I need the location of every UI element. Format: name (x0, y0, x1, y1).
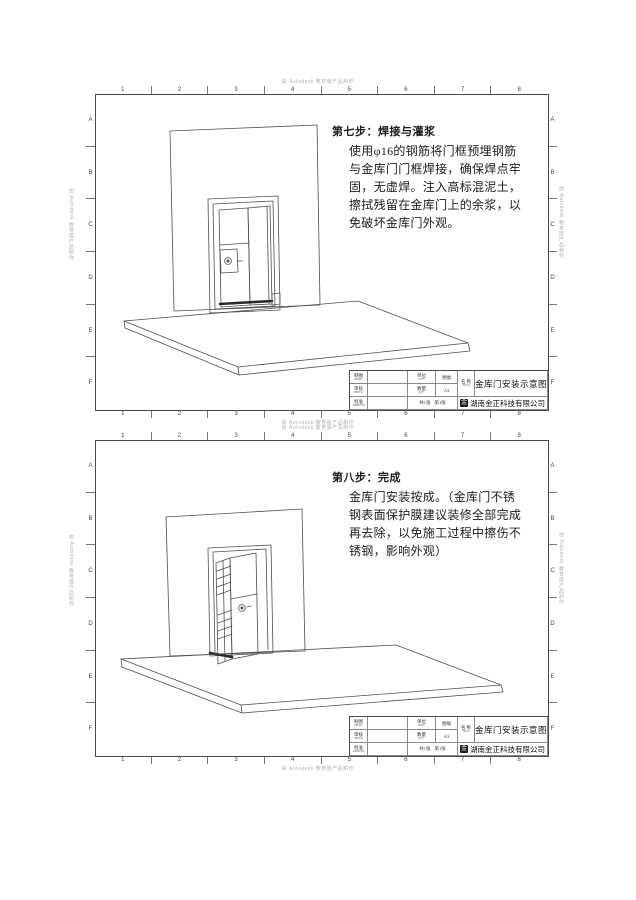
zone-number: 6 (377, 432, 434, 440)
field-qty: 数量QTY (408, 384, 436, 397)
bolt-bar (217, 582, 231, 587)
bolt-bar (218, 634, 232, 639)
zone-letter: C (86, 544, 95, 597)
field-format-value: A3 (436, 730, 458, 743)
floor-front-edge (241, 685, 503, 713)
zone-letter: B (548, 492, 557, 545)
zone-letter: E (86, 304, 95, 357)
zone-number: 3 (207, 410, 264, 418)
bolt-bar (217, 566, 231, 571)
autodesk-watermark-top: 由 Autodesk 教育版产品制作 (0, 78, 636, 85)
bolt-bar (218, 610, 232, 615)
field-qty: 数量QTY (408, 730, 436, 743)
zone-letter: D (86, 597, 95, 650)
field-approve: 批准APPROVE (350, 397, 368, 410)
field-name-label: 名 称TITLE (458, 717, 475, 743)
field-draw: 制图DRAW (350, 371, 368, 384)
step-line: 与金库门门框焊接，确保焊点牢 (349, 160, 540, 178)
zone-letter: D (548, 597, 557, 650)
step-line: 固，无虚焊。注入高标混泥土， (349, 178, 540, 196)
door-threshold (220, 301, 272, 304)
sheet-number: 共1张第1张 (408, 743, 458, 756)
field-check-value (368, 384, 408, 397)
zone-ruler-top: 12345678 (95, 86, 547, 94)
zone-letter: B (86, 146, 95, 199)
autodesk-watermark-right: 由 Autodesk 教育版产品制作 (558, 186, 565, 296)
step-line: 使用φ16的钢筋将门框预埋钢筋 (349, 142, 540, 160)
company-row: 金湖南金正科技有限公司 (458, 397, 548, 410)
company-logo: 金 (460, 745, 468, 753)
door-leaf-left (219, 208, 250, 307)
field-check: 审核CHECK (350, 384, 368, 397)
sheet-border: 第七步：焊接与灌浆 使用φ16的钢筋将门框预埋钢筋与金库门门框焊接，确保焊点牢固… (95, 94, 549, 411)
step-body: 使用φ16的钢筋将门框预埋钢筋与金库门门框焊接，确保焊点牢固，无虚焊。注入高标混… (349, 142, 540, 232)
zone-number: 8 (490, 432, 547, 440)
zone-number: 5 (321, 756, 378, 764)
step-line: 金库门安装按成。（金库门不锈 (349, 488, 540, 506)
floor-left-edge (124, 321, 239, 375)
step-line: 免破坏金库门外观。 (349, 214, 540, 232)
step-title: 第八步：完成 (332, 469, 540, 485)
zone-letter: A (86, 440, 95, 492)
field-format: 图幅 (436, 717, 458, 730)
zone-letter: A (86, 94, 95, 146)
zone-number: 3 (207, 432, 264, 440)
drawing-title: 金库门安装示意图 (475, 371, 548, 397)
zone-ruler-right: ABCDEF (548, 440, 557, 755)
door-leaf-edge-line (267, 207, 269, 304)
zone-letter: F (86, 356, 95, 409)
door-frame-inner (213, 201, 275, 309)
wall-outline (170, 125, 320, 311)
field-format: 图幅 (436, 371, 458, 384)
handle-hub (241, 607, 243, 609)
zone-ruler-right: ABCDEF (548, 94, 557, 409)
zone-number: 1 (95, 86, 151, 94)
floor-left-edge (121, 659, 242, 713)
zone-letter: D (86, 251, 95, 304)
door-leaf-face (230, 553, 258, 659)
zone-ruler-bottom: 12345678 (95, 410, 547, 418)
field-draw-value (368, 371, 408, 384)
zone-letter: C (86, 198, 95, 251)
zone-number: 1 (95, 756, 151, 764)
zone-letter: D (548, 251, 557, 304)
instruction-block: 第七步：焊接与灌浆 使用φ16的钢筋将门框预埋钢筋与金库门门框焊接，确保焊点牢固… (332, 123, 540, 232)
drawing-sheet-step8: 由 Autodesk 教育版产品制作 由 Autodesk 教育版产品制作 由 … (0, 424, 636, 774)
zone-letter: B (548, 146, 557, 199)
scanned-document-page: { "watermark": "由 Autodesk 教育版产品制作", "zo… (0, 0, 636, 900)
sheet-border: 第八步：完成 金库门安装按成。（金库门不锈钢表面保护膜建议装修全部完成再去除，以… (95, 440, 549, 757)
step-line: 擦拭残留在金库门上的余浆，以 (349, 196, 540, 214)
zone-letter: A (548, 440, 557, 492)
field-format-value: A3 (436, 384, 458, 397)
handle-hub (227, 260, 229, 262)
floor-top-face (121, 645, 501, 705)
zone-letter: E (548, 304, 557, 357)
zone-number: 2 (151, 410, 208, 418)
handle-tick (247, 606, 251, 607)
door-panel-line (220, 243, 249, 245)
zone-number: 4 (264, 432, 321, 440)
zone-number: 6 (377, 86, 434, 94)
zone-ruler-left: ABCDEF (86, 440, 95, 755)
company-logo: 金 (460, 399, 468, 407)
field-check-value (368, 730, 408, 743)
company-name: 湖南金正科技有限公司 (470, 744, 545, 755)
zone-number: 2 (151, 756, 208, 764)
zone-letter: F (548, 356, 557, 409)
door-leaf-panel-line (231, 594, 257, 599)
zone-number: 3 (207, 86, 264, 94)
zone-ruler-top: 12345678 (95, 432, 547, 440)
door-frame-reveal-left (213, 552, 215, 652)
bolt-bar (218, 618, 232, 623)
zone-ruler-bottom: 12345678 (95, 756, 547, 764)
zone-number: 1 (95, 410, 151, 418)
field-name-label: 名 称TITLE (458, 371, 475, 397)
zone-number: 4 (264, 86, 321, 94)
zone-number: 6 (377, 410, 434, 418)
wall-outline (166, 509, 305, 656)
zone-number: 5 (321, 432, 378, 440)
zone-letter: F (86, 702, 95, 755)
zone-number: 7 (434, 410, 491, 418)
zone-letter: C (548, 544, 557, 597)
step-line: 再去除，以免施工过程中擦伤不 (349, 524, 540, 542)
zone-letter: E (86, 650, 95, 703)
zone-letter: C (548, 198, 557, 251)
field-unit: 单位UNIT (408, 717, 436, 730)
zone-number: 8 (490, 410, 547, 418)
zone-number: 4 (264, 410, 321, 418)
field-unit: 单位UNIT (408, 371, 436, 384)
zone-number: 5 (321, 410, 378, 418)
field-approve-value (368, 743, 408, 756)
field-check: 审核CHECK (350, 730, 368, 743)
step-line: 锈钢，影响外观） (349, 542, 540, 560)
zone-number: 7 (434, 86, 491, 94)
zone-letter: F (548, 702, 557, 755)
zone-number: 5 (321, 86, 378, 94)
step-line: 钢表面保护膜建议装修全部完成 (349, 506, 540, 524)
company-row: 金湖南金正科技有限公司 (458, 743, 548, 756)
title-block: 制图DRAW 单位UNIT 图幅 名 称TITLE 金库门安装示意图 审核CHE… (349, 716, 548, 756)
zone-number: 2 (151, 432, 208, 440)
zone-number: 8 (490, 86, 547, 94)
instruction-block: 第八步：完成 金库门安装按成。（金库门不锈钢表面保护膜建议装修全部完成再去除，以… (332, 469, 540, 560)
bolt-bar (217, 574, 231, 579)
zone-number: 3 (207, 756, 264, 764)
door-frame-reveal-top (213, 549, 266, 552)
field-draw: 制图DRAW (350, 717, 368, 730)
title-block: 制图DRAW 单位UNIT 图幅 名 称TITLE 金库门安装示意图 审核CHE… (349, 370, 548, 410)
autodesk-watermark-left: 由 Autodesk 教育版产品制作 (68, 534, 75, 644)
autodesk-watermark-right: 由 Autodesk 教育版产品制作 (558, 532, 565, 642)
zone-number: 7 (434, 756, 491, 764)
drawing-sheet-step7: 由 Autodesk 教育版产品制作 由 Autodesk 教育版产品制作 由 … (0, 78, 636, 428)
zone-number: 2 (151, 86, 208, 94)
zone-number: 7 (434, 432, 491, 440)
zone-letter: B (86, 492, 95, 545)
door-frame-reveal-right (266, 549, 268, 650)
zone-ruler-left: ABCDEF (86, 94, 95, 409)
field-approve-value (368, 397, 408, 410)
company-name: 湖南金正科技有限公司 (470, 398, 545, 409)
drawing-title: 金库门安装示意图 (475, 717, 548, 743)
zone-letter: A (548, 94, 557, 146)
zone-number: 4 (264, 756, 321, 764)
autodesk-watermark-top: 由 Autodesk 教育版产品制作 (0, 424, 636, 431)
bolt-bar (218, 626, 232, 631)
field-approve: 批准APPROVE (350, 743, 368, 756)
zone-number: 6 (377, 756, 434, 764)
frame-foot (272, 293, 280, 305)
step-title: 第七步：焊接与灌浆 (332, 123, 540, 139)
autodesk-watermark-left: 由 Autodesk 教育版产品制作 (68, 188, 75, 298)
zone-number: 1 (95, 432, 151, 440)
autodesk-watermark-bottom: 由 Autodesk 教育版产品制作 (0, 765, 636, 772)
field-draw-value (368, 717, 408, 730)
zone-number: 8 (490, 756, 547, 764)
step-body: 金库门安装按成。（金库门不锈钢表面保护膜建议装修全部完成再去除，以免施工过程中擦… (349, 488, 540, 560)
sheet-number: 共1张第1张 (408, 397, 458, 410)
zone-letter: E (548, 650, 557, 703)
